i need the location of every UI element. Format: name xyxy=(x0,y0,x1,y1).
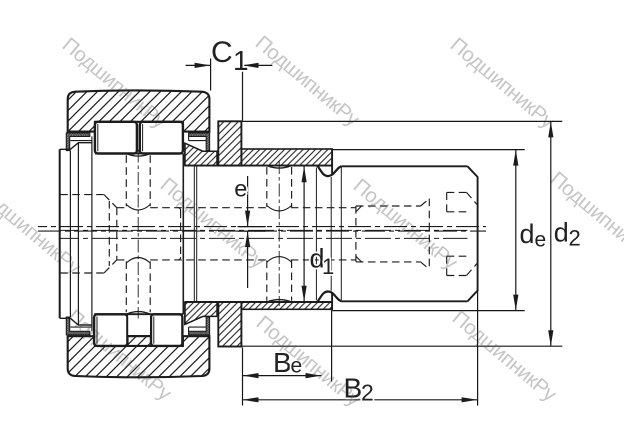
svg-text:e: e xyxy=(535,229,547,252)
svg-text:d: d xyxy=(554,218,569,248)
svg-text:C: C xyxy=(211,36,233,69)
svg-text:1: 1 xyxy=(233,45,249,76)
svg-text:1: 1 xyxy=(322,254,334,279)
svg-text:d: d xyxy=(520,219,535,249)
svg-text:e: e xyxy=(234,175,247,201)
svg-text:2: 2 xyxy=(569,226,581,251)
